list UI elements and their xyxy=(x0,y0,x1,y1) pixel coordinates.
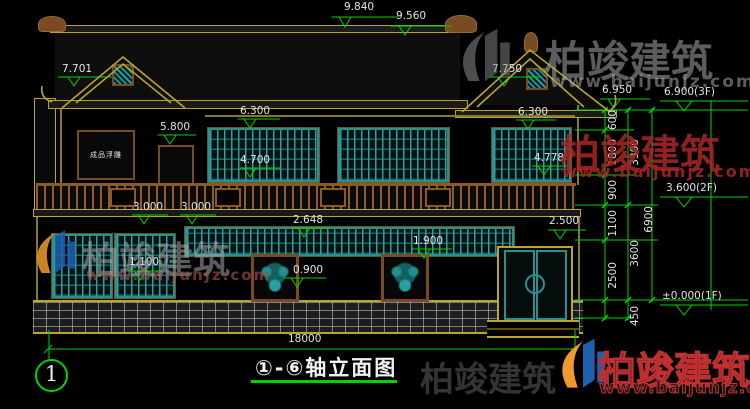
dim-label: 3.000 xyxy=(181,202,211,213)
brand-logo-color xyxy=(28,228,82,282)
dim-label: 3.600(2F) xyxy=(666,183,717,194)
brand-logo-gray xyxy=(452,26,518,92)
watermark-url: www.baijunjz.com xyxy=(599,378,750,398)
dim-label: 4.700 xyxy=(240,155,270,166)
dim-label: ±0.000(1F) xyxy=(662,291,722,302)
dim-label: 0.900 xyxy=(293,265,323,276)
drawing-title: ①-⑥轴立面图 xyxy=(255,352,397,382)
axis-bubble-1: 1 xyxy=(35,359,68,392)
dim-label: 6.300 xyxy=(240,106,270,117)
watermark-brand: 柏竣建筑 xyxy=(420,352,556,401)
dim-label: 5.800 xyxy=(160,122,190,133)
dim-label: 2500 xyxy=(608,262,619,289)
dim-label: 7.701 xyxy=(62,64,92,75)
dim-label: 2.648 xyxy=(293,215,323,226)
dim-label: 9.560 xyxy=(396,11,426,22)
dim-label: 3600 xyxy=(630,240,641,267)
dim-label: 1100 xyxy=(608,210,619,237)
dim-label: 6900 xyxy=(644,206,655,233)
dim-label: 450 xyxy=(630,306,641,326)
watermark-url: www.baijunjz.com xyxy=(86,266,271,284)
dim-label: 6.300 xyxy=(518,107,548,118)
dim-label: 1.900 xyxy=(413,236,443,247)
dim-label: 9.840 xyxy=(344,2,374,13)
dim-label: 18000 xyxy=(288,334,321,345)
watermark-url: www.baijunjz.com xyxy=(562,162,750,181)
title-underline xyxy=(251,380,397,383)
watermark-url: www.baijunjz.com xyxy=(550,72,750,92)
dim-label: 3.000 xyxy=(133,202,163,213)
dim-label: 900 xyxy=(608,180,619,200)
cad-elevation-drawing: 成品浮雕 xyxy=(0,0,750,409)
dim-label: 2.500 xyxy=(549,216,579,227)
